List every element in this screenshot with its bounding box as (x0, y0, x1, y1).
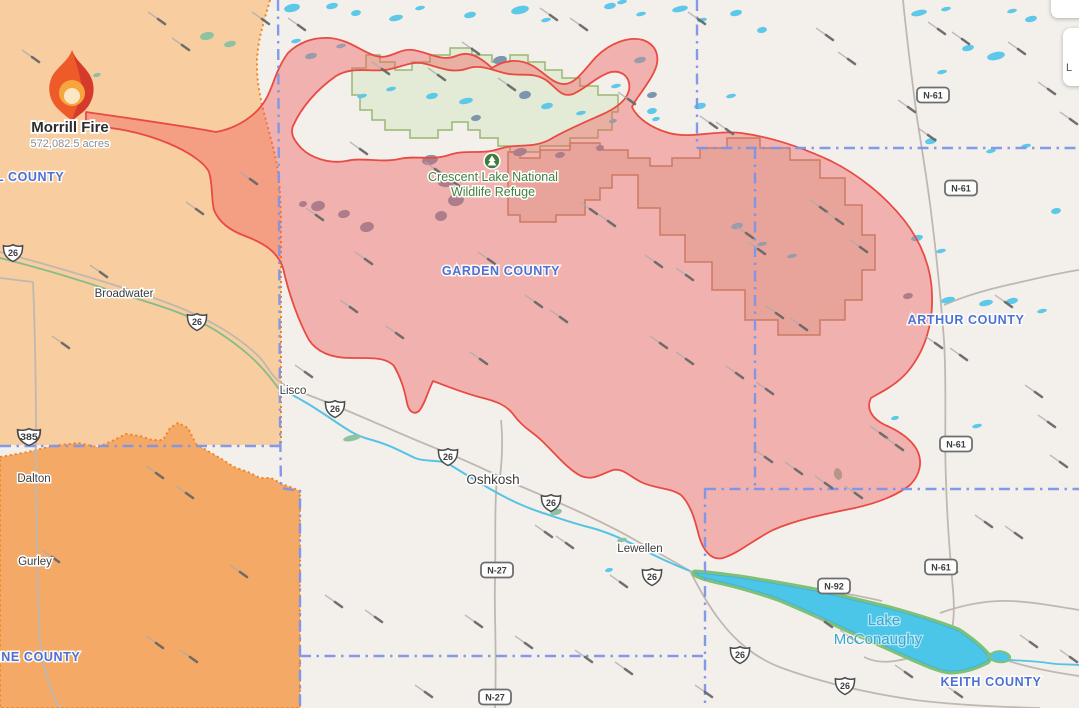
shield-number: 26 (735, 650, 745, 660)
shield-number: N-61 (951, 184, 971, 194)
water-label: McConaughy (834, 631, 923, 648)
fire-map-app: Crescent Lake National Wildlife Refuge L… (0, 0, 1079, 708)
map-control-card[interactable] (1051, 0, 1079, 18)
shield-number: N-61 (931, 563, 951, 573)
shield-number: 26 (647, 572, 657, 582)
shield-number: N-27 (487, 566, 507, 576)
refuge-marker[interactable] (484, 153, 500, 169)
shield-number: N-27 (485, 693, 505, 703)
state-route-shield: N-27 (479, 690, 511, 705)
shield-number: N-61 (946, 440, 966, 450)
county-label: KEITH COUNTY (941, 675, 1042, 689)
shield-number: 26 (192, 317, 202, 327)
fire-acres-label: 572,082.5 acres (31, 138, 110, 150)
water-label: Lake (868, 612, 901, 629)
legend-card-label: L (1066, 62, 1072, 74)
shield-number: N-92 (824, 582, 844, 592)
county-label: ARTHUR COUNTY (908, 313, 1025, 327)
town-label: Gurley (18, 556, 52, 568)
county-label: LL COUNTY (0, 170, 64, 184)
fire-name-label[interactable]: Morrill Fire (31, 119, 109, 136)
state-route-shield: N-61 (917, 88, 949, 103)
state-route-shield: N-92 (818, 579, 850, 594)
state-route-shield: N-61 (925, 560, 957, 575)
county-label: GARDEN COUNTY (442, 264, 560, 278)
shield-number: N-61 (923, 91, 943, 101)
state-route-shield: N-61 (945, 181, 977, 196)
flame-core (64, 88, 80, 104)
shield-number: 26 (330, 404, 340, 414)
state-route-shield: N-27 (481, 563, 513, 578)
state-route-shield: N-61 (940, 437, 972, 452)
shield-number: 26 (546, 498, 556, 508)
county-label: NNE COUNTY (0, 650, 80, 664)
town-label: Lisco (280, 385, 307, 397)
shield-number: 385 (20, 432, 38, 442)
shield-number: 26 (840, 681, 850, 691)
town-label: Broadwater (95, 288, 154, 300)
shield-number: 26 (443, 452, 453, 462)
town-label: Oshkosh (466, 472, 519, 487)
shield-number: 26 (8, 248, 18, 258)
refuge-label-line1: Crescent Lake National (428, 170, 558, 184)
town-label: Lewellen (617, 543, 662, 555)
map-canvas[interactable]: Crescent Lake National Wildlife Refuge L… (0, 0, 1079, 708)
refuge-label-line2: Wildlife Refuge (451, 185, 535, 199)
legend-card[interactable]: L (1063, 28, 1079, 86)
town-label: Dalton (17, 473, 50, 485)
